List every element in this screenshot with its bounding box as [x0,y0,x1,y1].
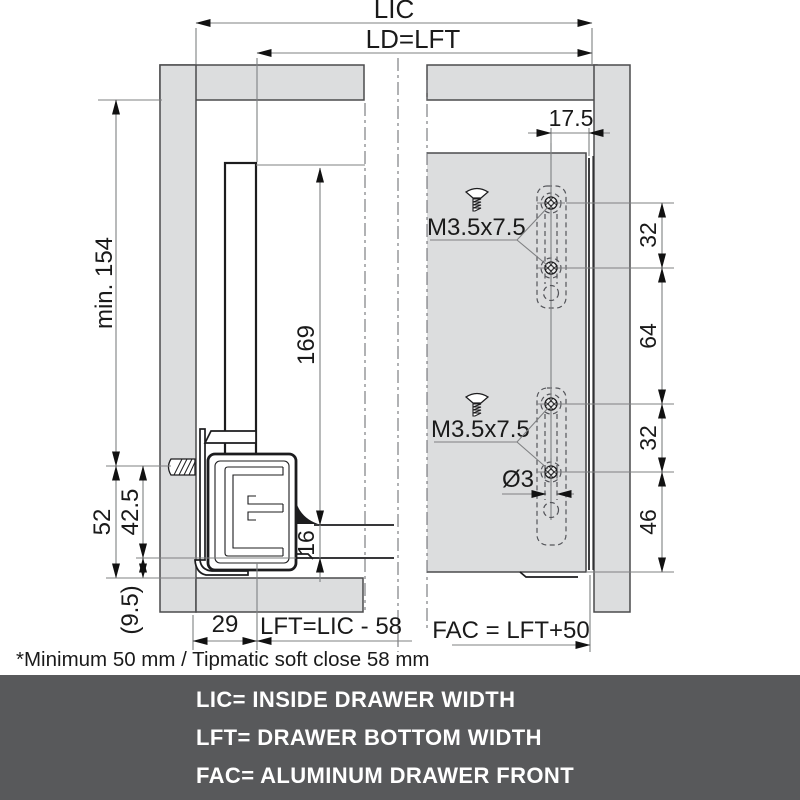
dim-9-5-label: (9.5) [117,585,144,634]
mounting-screw-side-icon [169,459,196,475]
footnote: *Minimum 50 mm / Tipmatic soft close 58 … [16,648,430,671]
dim-46-label: 46 [635,509,661,535]
dim-42-5-label: 42.5 [117,489,144,536]
dim-16-label: 16 [293,530,319,556]
legend-lic: LIC= INSIDE DRAWER WIDTH [196,689,800,711]
dim-fac-formula: FAC = LFT+50 [432,575,590,652]
cabinet-bottom-panel [196,578,363,612]
dim-52-label: 52 [89,509,116,536]
runner-top-hook [205,431,256,443]
min-154-label: min. 154 [91,237,118,329]
ld-lft-label: LD=LFT [366,24,461,54]
dim-29-label: 29 [212,611,239,638]
cabinet-right-side-panel [594,65,630,612]
hole-diameter-label: Ø3 [502,466,534,493]
drawer-side-wall [225,163,256,463]
legend-fac: FAC= ALUMINUM DRAWER FRONT [196,765,800,787]
cabinet-left-side-panel [160,65,196,612]
dim-64-label: 64 [635,323,661,349]
lic-label: LIC [374,0,414,24]
technical-diagram: LIC LD=LFT min. 154 52 42.5 (9.5) 169 16 [0,0,800,675]
lft-formula-label: LFT=LIC - 58 [260,613,402,640]
drawer-installation-diagram-page: LIC LD=LFT min. 154 52 42.5 (9.5) 169 16 [0,0,800,800]
legend-footer: LIC= INSIDE DRAWER WIDTH LFT= DRAWER BOT… [0,675,800,800]
runner-fillet [296,502,318,524]
dim-lft-formula: LFT=LIC - 58 [257,613,412,641]
dim-min-154: min. 154 [91,100,162,466]
screw-spec-upper-label: M3.5x7.5 [427,214,526,241]
screw-spec-lower-label: M3.5x7.5 [431,416,530,443]
cabinet-top-panel-right [427,65,597,100]
legend-lft: LFT= DRAWER BOTTOM WIDTH [196,727,800,749]
dim-17-5-label: 17.5 [549,105,594,131]
right-front-view [427,65,630,632]
left-section-view [160,58,398,652]
dim-32-lower-label: 32 [635,425,661,451]
dim-16: 16 [293,525,320,582]
fac-formula-label: FAC = LFT+50 [432,617,589,644]
dim-32-upper-label: 32 [635,222,661,248]
dim-169-label: 169 [293,325,320,365]
